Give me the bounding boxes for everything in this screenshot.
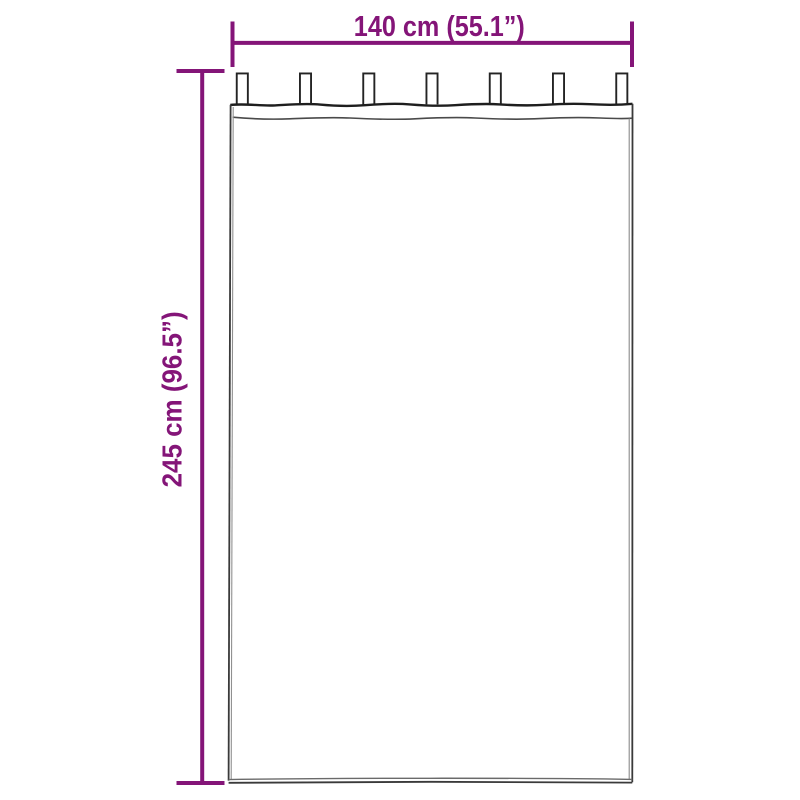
svg-text:140 cm (55.1”): 140 cm (55.1”) [354, 11, 525, 43]
svg-text:245 cm (96.5”): 245 cm (96.5”) [157, 311, 188, 487]
